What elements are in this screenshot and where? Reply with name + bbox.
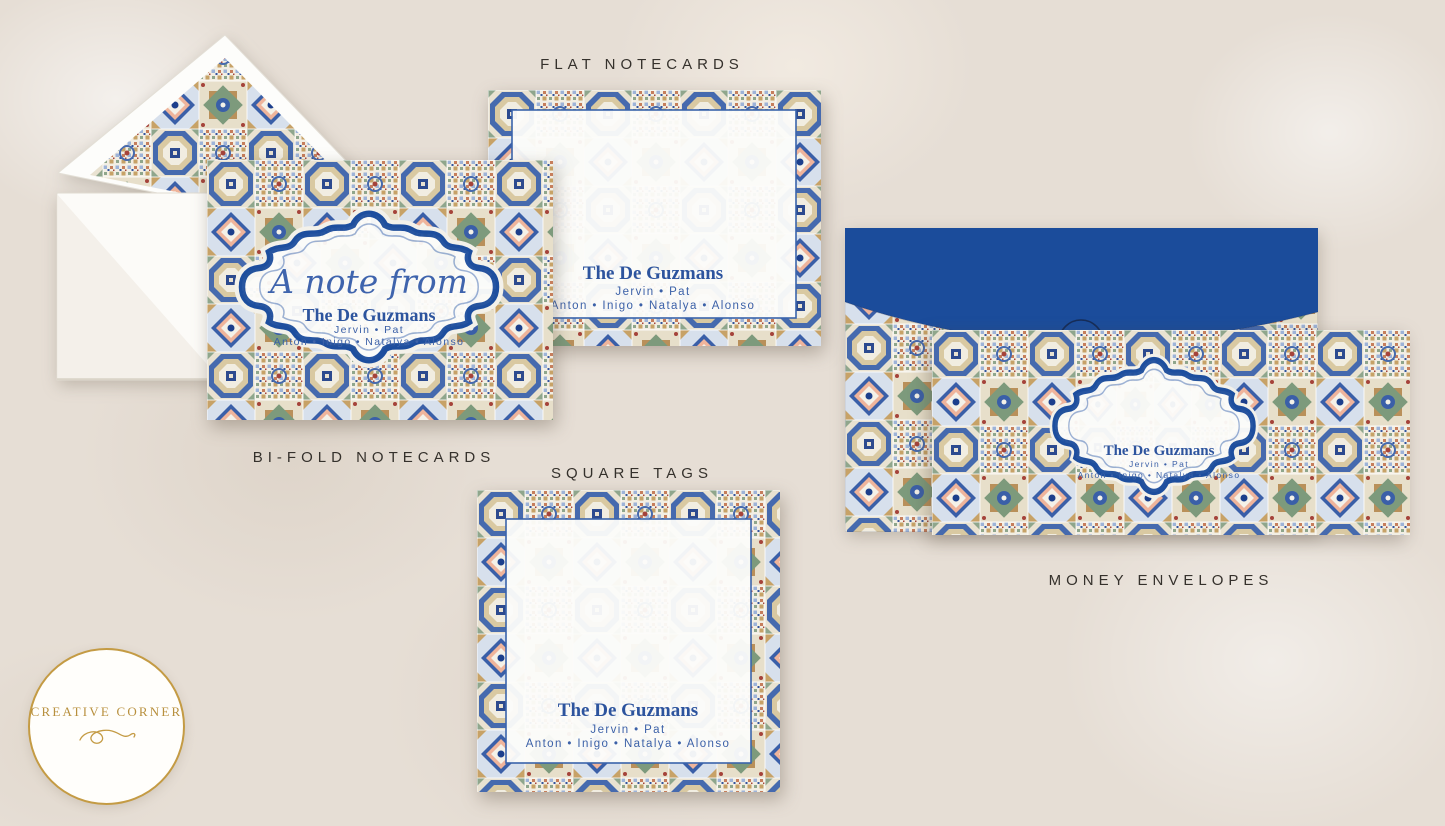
infinity-flourish-icon <box>74 724 140 750</box>
mockup-canvas: The De Guzmans Jervin • Pat Anton • Inig… <box>0 0 1445 826</box>
label-flat-notecards: FLAT NOTECARDS <box>540 56 744 73</box>
square-tag: The De Guzmans Jervin • Pat Anton • Inig… <box>477 490 780 792</box>
brand-logo-text: CREATIVE CORNER <box>31 704 183 720</box>
square-tag-children: Anton • Inigo • Natalya • Alonso <box>526 738 731 750</box>
label-square-tags: SQUARE TAGS <box>551 465 713 482</box>
flat-card-family-name: The De Guzmans <box>583 263 723 284</box>
bifold-script-intro: A note from <box>267 262 468 301</box>
bifold-notecard: A note from The De Guzmans Jervin • Pat … <box>207 160 553 420</box>
money-children: Anton • Inigo • Natalya • Alonso <box>1078 470 1241 480</box>
money-family-name: The De Guzmans <box>1104 443 1215 459</box>
flat-card-parents: Jervin • Pat <box>615 286 690 298</box>
square-tag-parents: Jervin • Pat <box>590 724 665 736</box>
label-money-envelopes: MONEY ENVELOPES <box>1049 572 1274 589</box>
money-envelope-front: The De Guzmans Jervin • Pat Anton • Inig… <box>932 330 1410 535</box>
bifold-family-name: The De Guzmans <box>302 305 435 325</box>
money-parents: Jervin • Pat <box>1129 459 1189 469</box>
brand-logo-badge: CREATIVE CORNER <box>28 648 185 805</box>
label-bifold-notecards: BI-FOLD NOTECARDS <box>253 449 496 466</box>
bifold-parents: Jervin • Pat <box>334 324 404 336</box>
square-tag-family-name: The De Guzmans <box>558 700 698 721</box>
bifold-children: Anton • Inigo • Natalya • Alonso <box>274 336 465 348</box>
flat-card-children: Anton • Inigo • Natalya • Alonso <box>551 300 756 312</box>
